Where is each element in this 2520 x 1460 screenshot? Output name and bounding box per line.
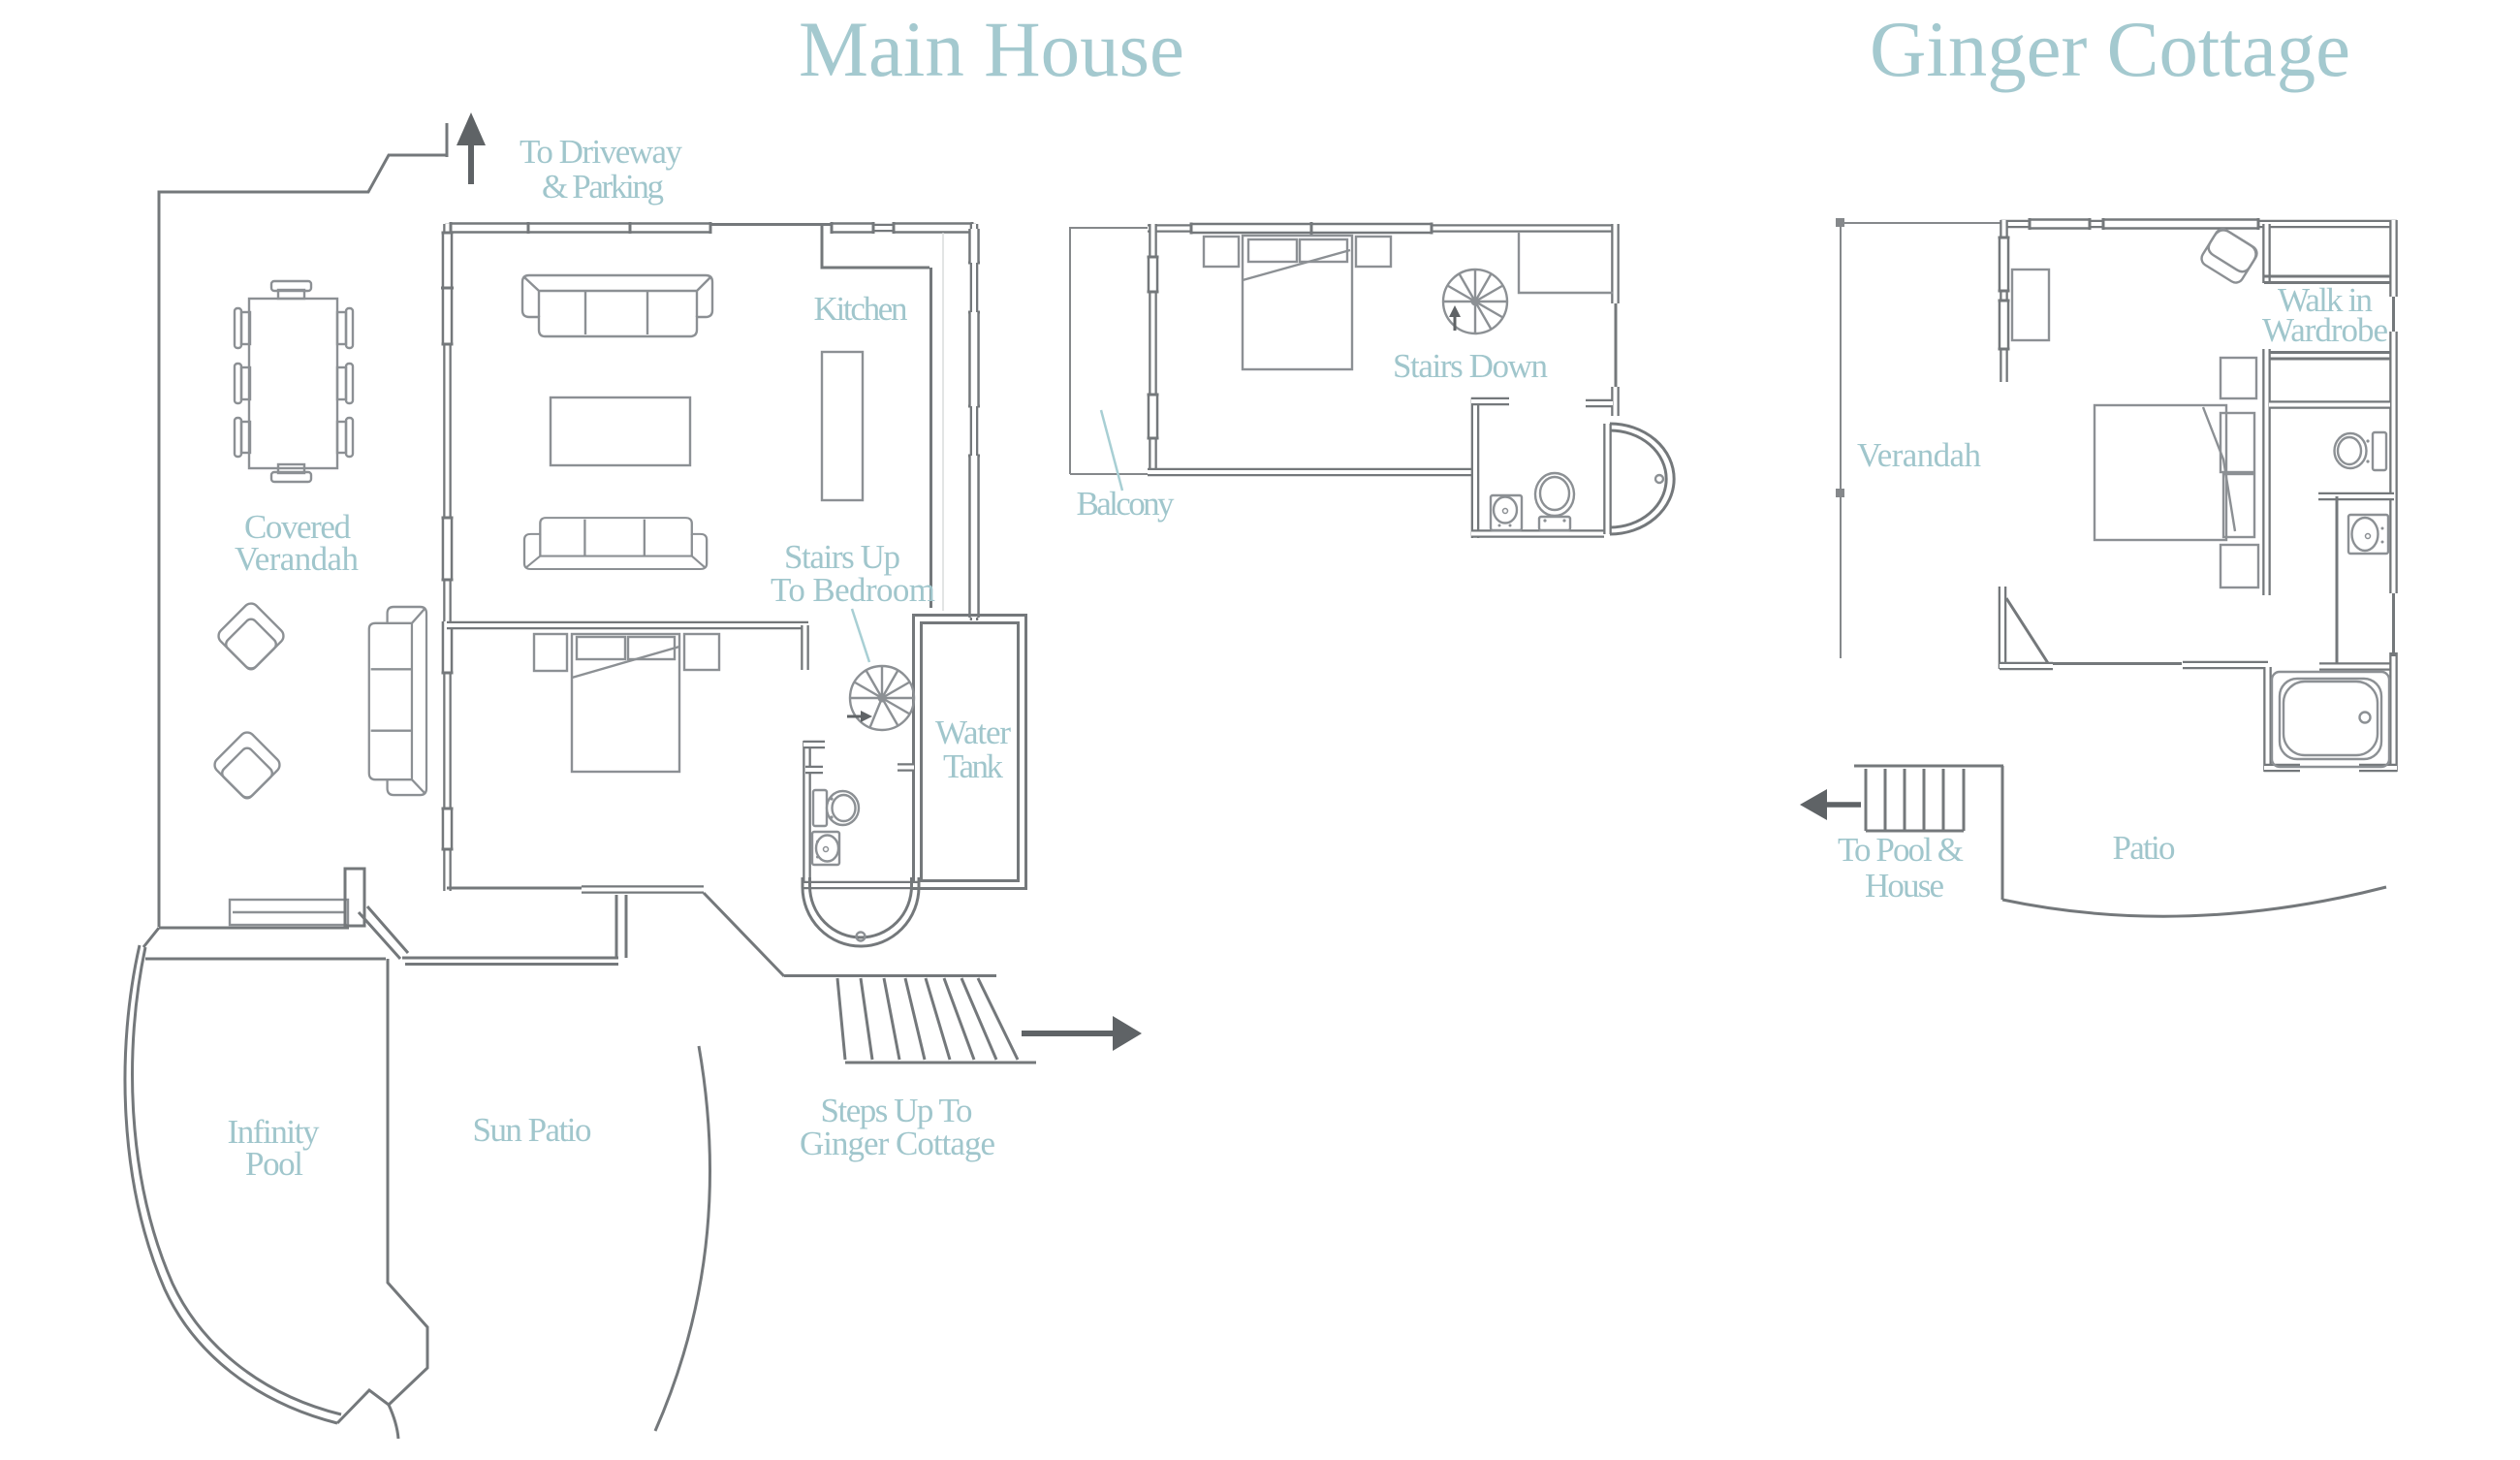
- svg-text:Water: Water: [935, 714, 1011, 751]
- svg-text:Main House: Main House: [799, 5, 1184, 93]
- svg-text:Wardrobe: Wardrobe: [2262, 311, 2388, 349]
- svg-text:To Bedroom: To Bedroom: [771, 571, 935, 609]
- svg-text:House: House: [1865, 867, 1944, 905]
- svg-text:Ginger Cottage: Ginger Cottage: [800, 1125, 995, 1162]
- svg-text:Tank: Tank: [943, 747, 1004, 785]
- svg-text:Stairs Down: Stairs Down: [1393, 347, 1548, 385]
- svg-text:Balcony: Balcony: [1077, 485, 1176, 523]
- svg-text:Kitchen: Kitchen: [814, 290, 908, 328]
- svg-text:Pool: Pool: [245, 1145, 303, 1183]
- svg-text:To Driveway: To Driveway: [520, 133, 683, 171]
- svg-text:Verandah: Verandah: [1857, 436, 1982, 474]
- svg-text:Sun Patio: Sun Patio: [473, 1111, 592, 1149]
- svg-text:Verandah: Verandah: [235, 540, 360, 578]
- svg-text:& Parking: & Parking: [542, 168, 664, 206]
- svg-text:To Pool &: To Pool &: [1838, 831, 1964, 869]
- svg-text:Patio: Patio: [2113, 829, 2176, 867]
- svg-text:Ginger Cottage: Ginger Cottage: [1870, 5, 2350, 93]
